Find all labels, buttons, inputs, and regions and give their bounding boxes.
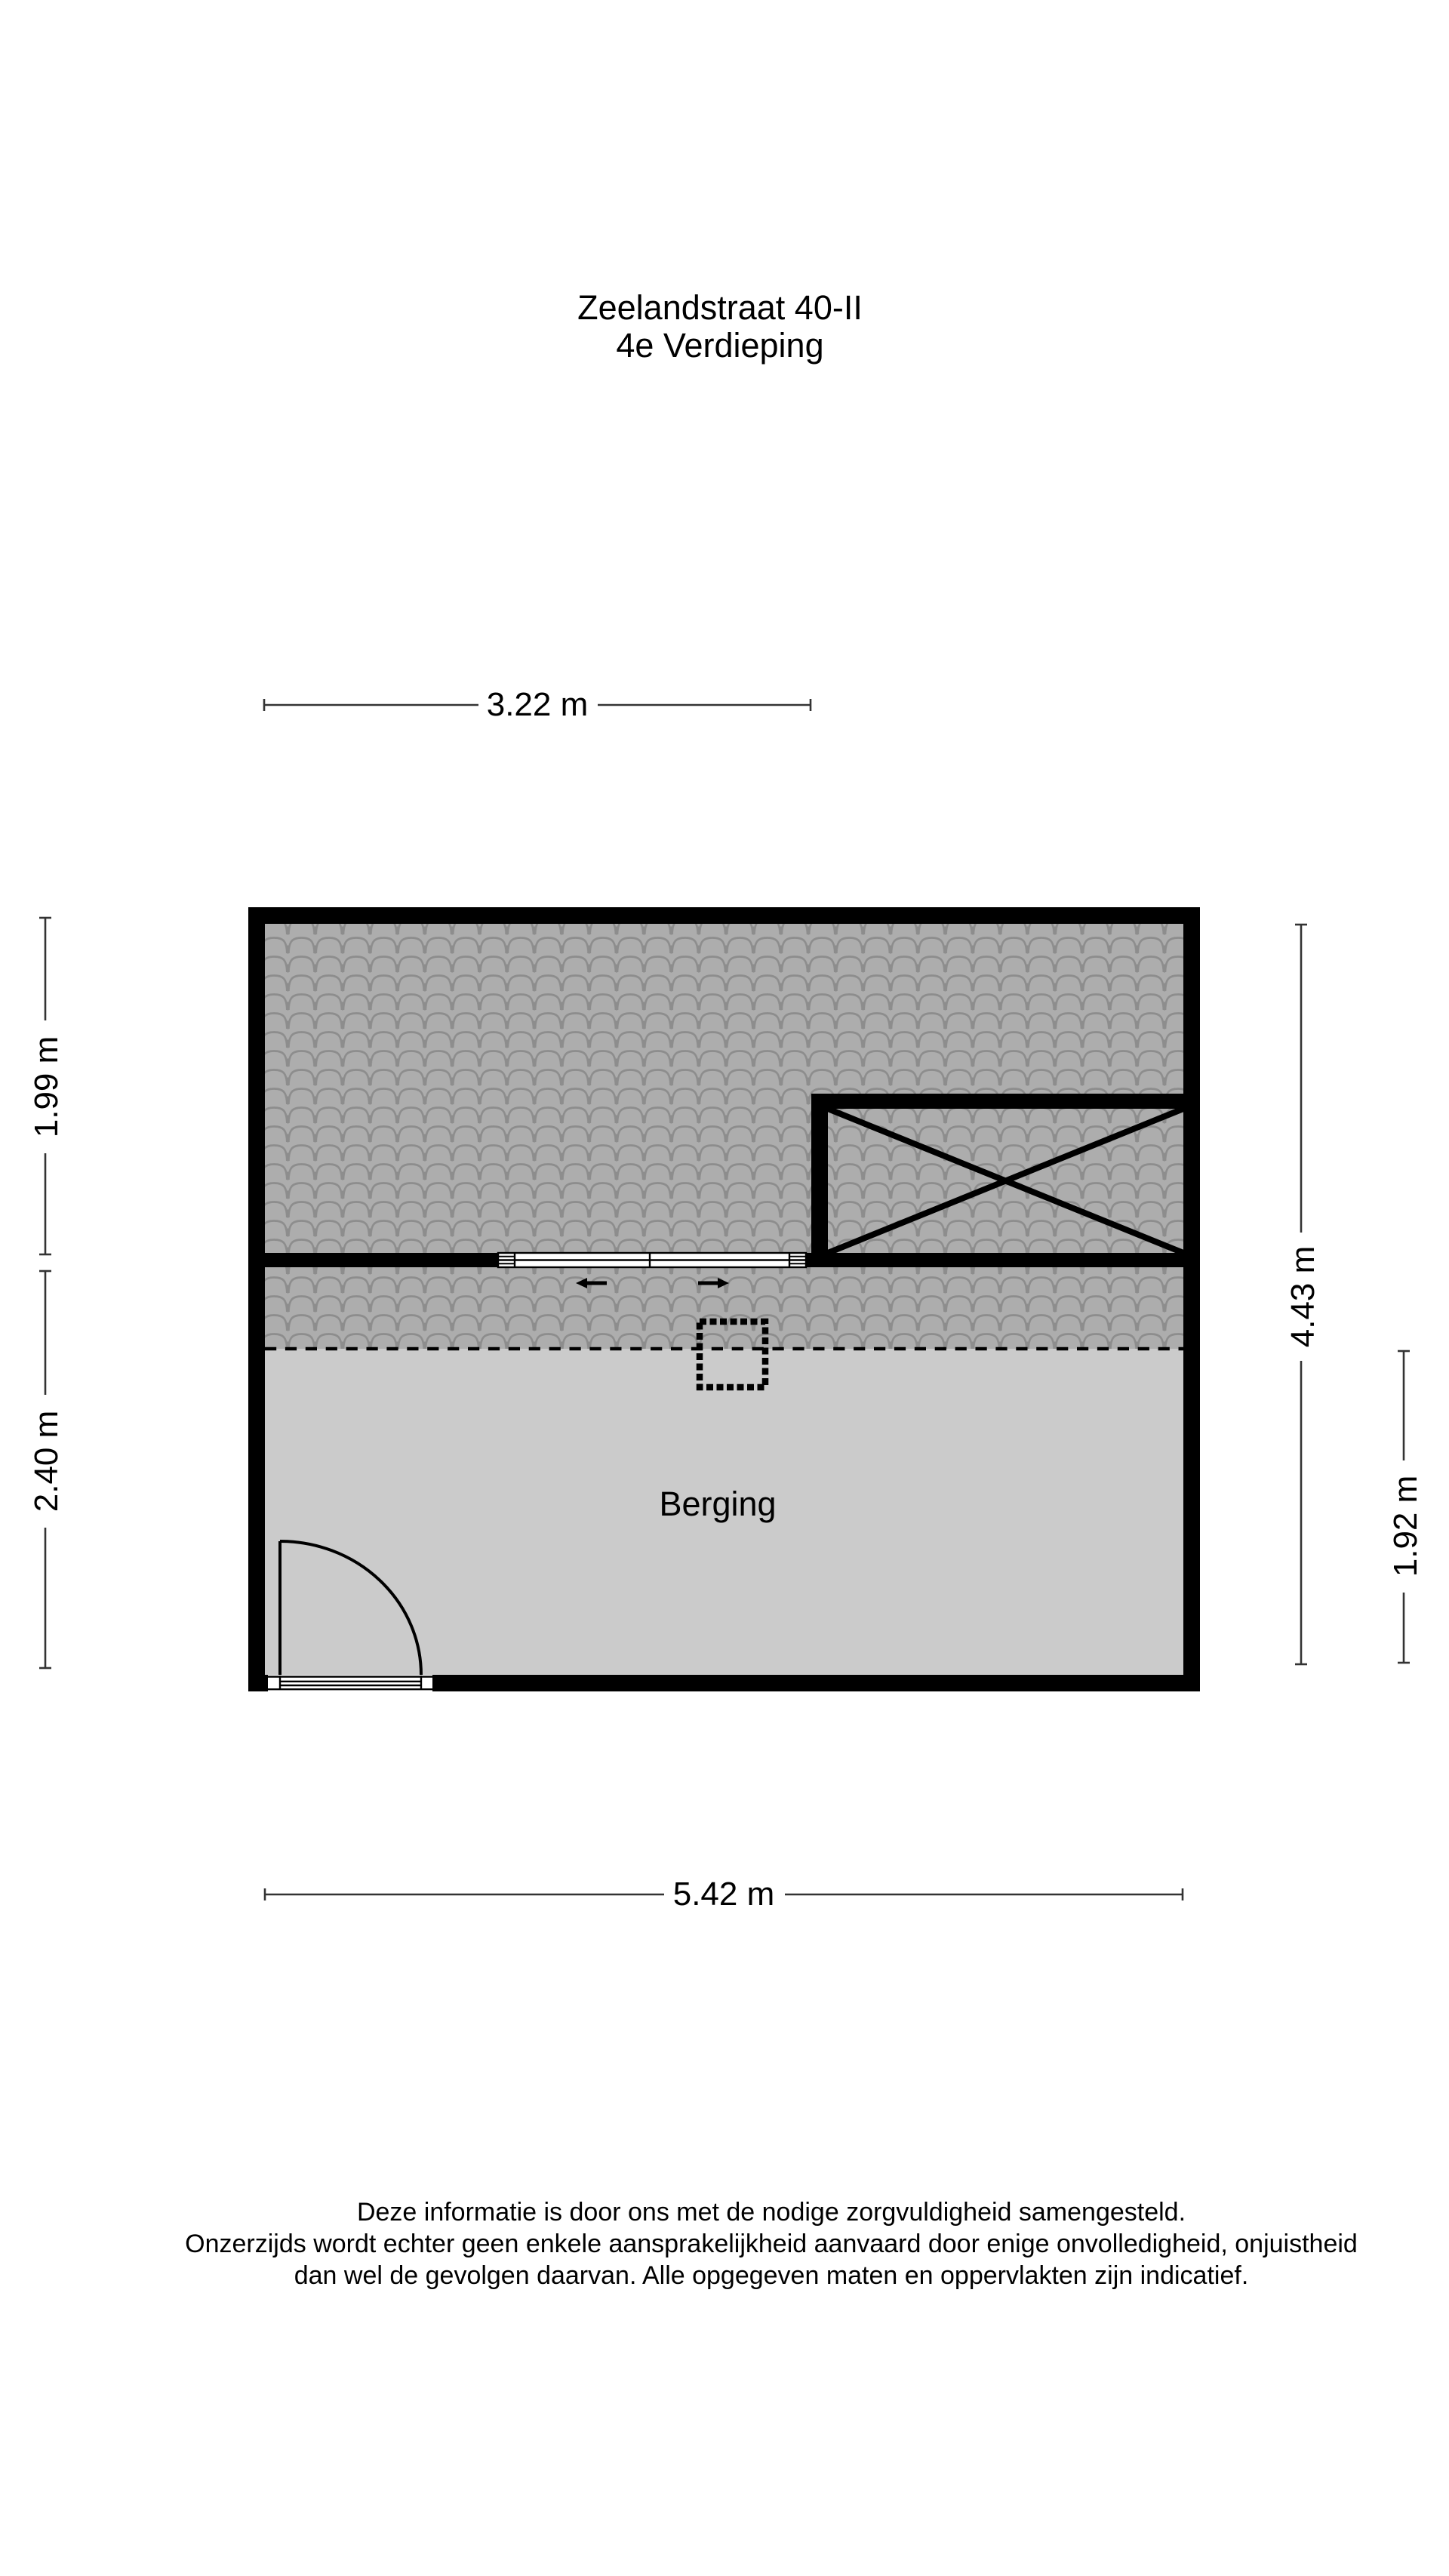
svg-text:4.43 m: 4.43 m	[1284, 1246, 1321, 1348]
svg-text:5.42 m: 5.42 m	[673, 1876, 775, 1913]
svg-text:dan wel de gevolgen daarvan. A: dan wel de gevolgen daarvan. Alle opgege…	[294, 2261, 1249, 2290]
svg-text:1.99 m: 1.99 m	[28, 1036, 65, 1138]
svg-text:2.40 m: 2.40 m	[28, 1411, 65, 1513]
svg-text:3.22 m: 3.22 m	[487, 686, 589, 723]
svg-text:1.92 m: 1.92 m	[1387, 1476, 1424, 1577]
svg-text:Onzerzijds wordt echter geen e: Onzerzijds wordt echter geen enkele aans…	[185, 2230, 1358, 2258]
svg-text:4e Verdieping: 4e Verdieping	[616, 326, 823, 365]
svg-text:Deze informatie is door ons me: Deze informatie is door ons met de nodig…	[357, 2198, 1186, 2227]
svg-text:Berging: Berging	[659, 1485, 776, 1523]
svg-text:Zeelandstraat 40-II: Zeelandstraat 40-II	[577, 288, 863, 327]
